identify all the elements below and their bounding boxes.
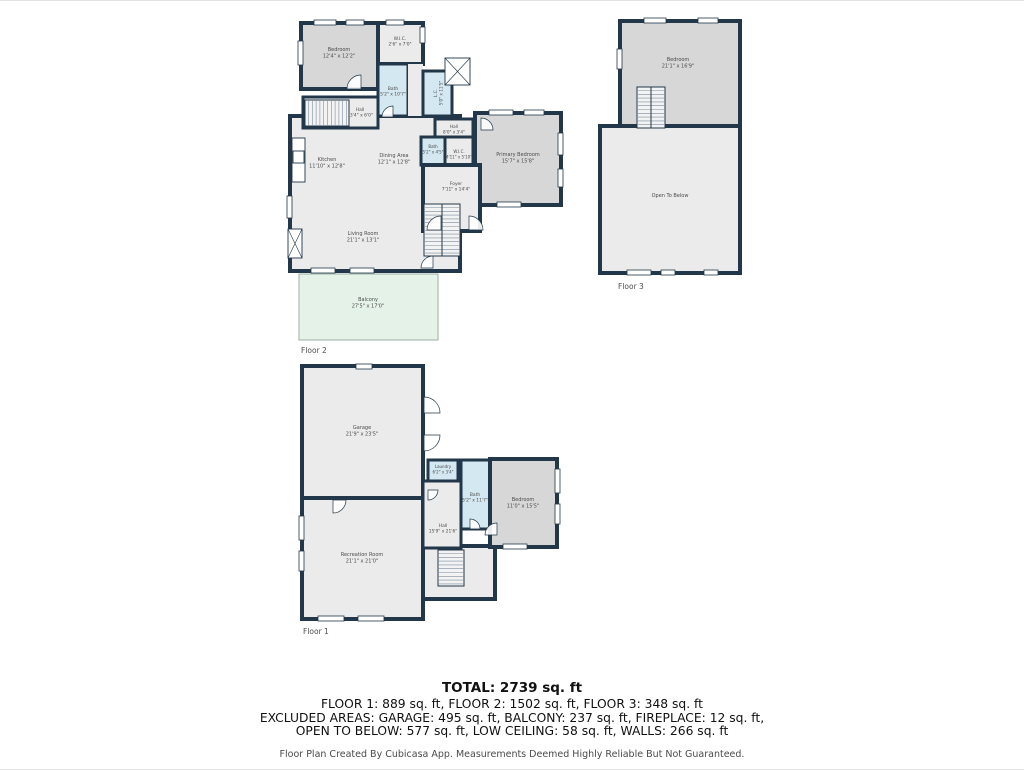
window	[287, 196, 292, 218]
floor-3-plan: Bedroom21'1" x 16'9"Open To BelowFloor 3	[600, 18, 740, 291]
window	[350, 268, 374, 273]
window	[386, 20, 404, 25]
shower-f2	[445, 58, 470, 85]
stove-f2	[293, 151, 304, 163]
window	[558, 133, 563, 155]
window	[558, 169, 563, 187]
floor-1-plan: Garage21'9" x 23'5"Recreation Room21'1" …	[299, 364, 560, 636]
primary-bedroom-f2-label: Primary Bedroom15'7" x 15'8"	[496, 152, 540, 164]
window	[489, 110, 513, 115]
stairs-f3	[637, 87, 665, 128]
window	[318, 616, 344, 621]
floor-plan-page: Bedroom12'4" x 12'2"W.I.C.2'6" x 7'0"Bat…	[0, 0, 1024, 770]
floor-1-plan-caption: Floor 1	[303, 627, 329, 636]
window	[299, 516, 304, 540]
summary-total: TOTAL: 2739 sq. ft	[0, 680, 1024, 696]
garage-door-arc	[424, 397, 440, 413]
window	[420, 27, 425, 43]
window	[704, 270, 718, 275]
summary-disclaimer: Floor Plan Created By Cubicasa App. Meas…	[0, 749, 1024, 760]
summary-excluded-areas-1: EXCLUDED AREAS: GARAGE: 495 sq. ft, BALC…	[0, 712, 1024, 726]
window	[358, 616, 384, 621]
window	[617, 49, 622, 69]
window	[314, 20, 336, 25]
area-summary: TOTAL: 2739 sq. ft FLOOR 1: 889 sq. ft, …	[0, 680, 1024, 760]
window	[555, 469, 560, 493]
window	[644, 18, 666, 23]
window	[555, 504, 560, 524]
floorplan-canvas: Bedroom12'4" x 12'2"W.I.C.2'6" x 7'0"Bat…	[0, 1, 1024, 769]
window	[661, 270, 675, 275]
stairs-f1	[438, 550, 464, 586]
living-room-label: Living Room21'1" x 13'1"	[347, 231, 380, 243]
window	[356, 364, 372, 369]
fireplace-f2	[288, 229, 302, 258]
window	[298, 41, 303, 65]
garage-door-arc	[424, 435, 440, 451]
open-to-below-f3-label: Open To Below	[652, 193, 689, 199]
window	[627, 270, 651, 275]
window	[524, 110, 544, 115]
stairs-upper-f2	[305, 100, 349, 126]
window	[497, 202, 521, 207]
dining-area-label: Dining Area12'1" x 12'8"	[378, 153, 411, 165]
floor-2-plan-caption: Floor 2	[301, 346, 327, 355]
window	[503, 544, 527, 549]
laundry-f1-label: Laundry6'2" x 3'4"	[433, 464, 454, 474]
floor-3-plan-caption: Floor 3	[618, 282, 644, 291]
floor-2-plan: Bedroom12'4" x 12'2"W.I.C.2'6" x 7'0"Bat…	[287, 20, 563, 355]
window	[698, 18, 718, 23]
summary-floor-areas: FLOOR 1: 889 sq. ft, FLOOR 2: 1502 sq. f…	[0, 698, 1024, 712]
hall-strip-f2	[408, 64, 423, 116]
window	[311, 268, 335, 273]
open-to-below-f3	[600, 126, 740, 273]
window	[299, 551, 304, 571]
summary-excluded-areas-2: OPEN TO BELOW: 577 sq. ft, LOW CEILING: …	[0, 725, 1024, 739]
recreation-room-f1-label: Recreation Room21'1" x 21'0"	[341, 552, 384, 564]
window	[346, 20, 364, 25]
